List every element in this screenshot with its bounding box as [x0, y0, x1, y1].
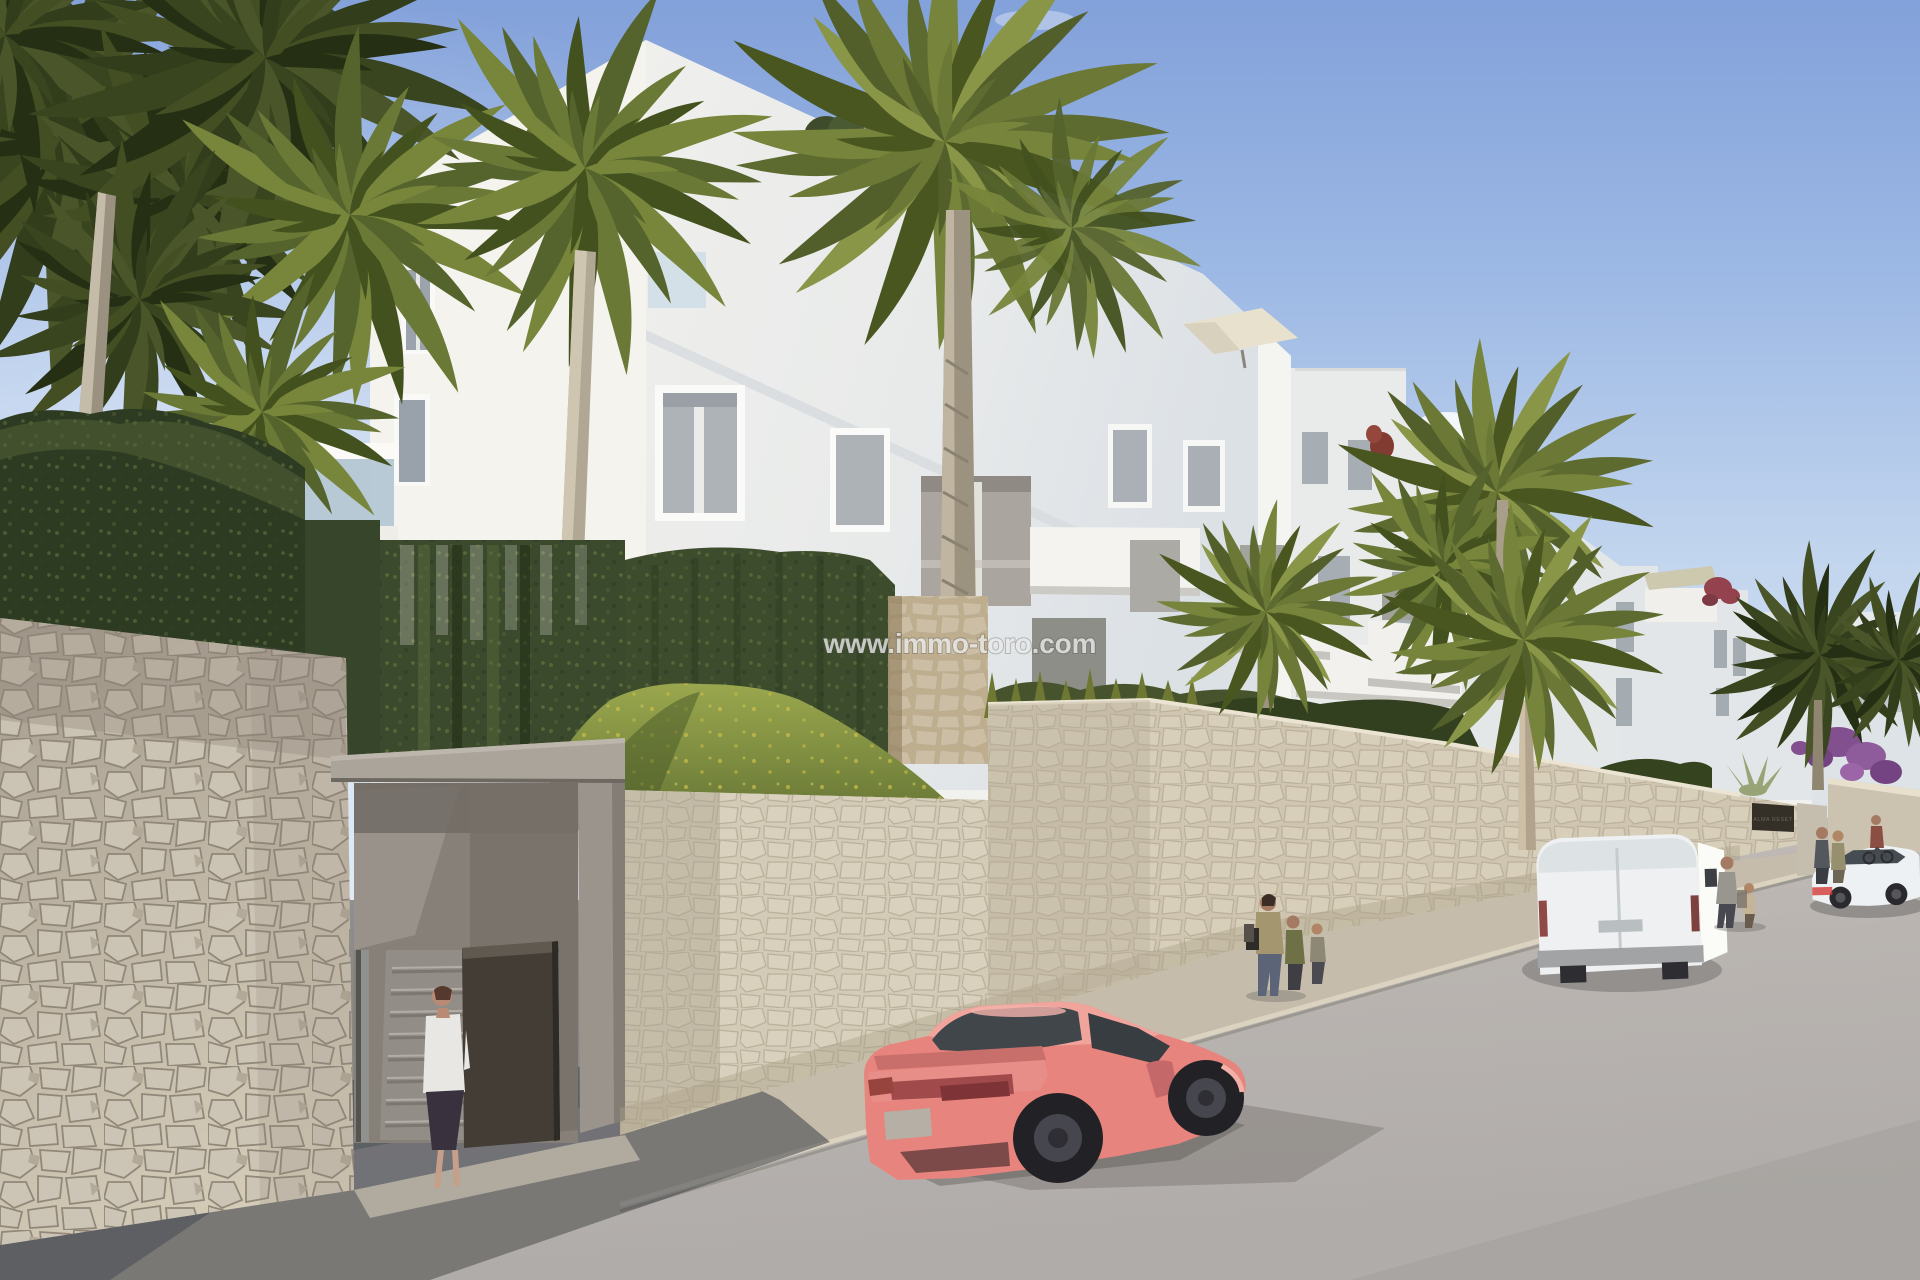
svg-text:www.immo-toro.com: www.immo-toro.com [823, 628, 1097, 659]
svg-text:ALMA RESET: ALMA RESET [1753, 817, 1793, 823]
